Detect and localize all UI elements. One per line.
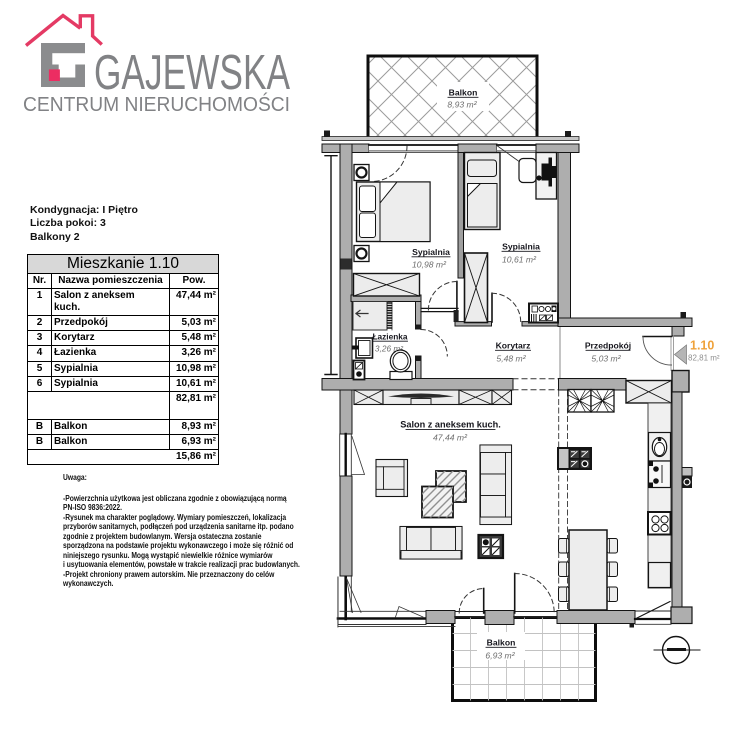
svg-text:5,48 m²: 5,48 m²	[496, 354, 526, 364]
svg-text:10,98 m²: 10,98 m²	[412, 260, 447, 270]
svg-text:Balkon: Balkon	[449, 88, 478, 98]
svg-text:Korytarz: Korytarz	[496, 341, 531, 351]
svg-text:8,93 m²: 8,93 m²	[447, 100, 477, 110]
svg-text:3,26 m²: 3,26 m²	[375, 344, 403, 354]
svg-text:10,61 m²: 10,61 m²	[502, 255, 537, 265]
svg-text:Balkon: Balkon	[487, 638, 516, 648]
svg-text:6,93 m²: 6,93 m²	[485, 651, 515, 661]
svg-text:Salon z aneksem kuch.: Salon z aneksem kuch.	[400, 420, 501, 430]
svg-text:5,03 m²: 5,03 m²	[591, 354, 621, 364]
svg-text:Sypialnia: Sypialnia	[412, 247, 450, 257]
svg-text:1.10: 1.10	[690, 339, 714, 353]
svg-text:Łazienka: Łazienka	[372, 332, 407, 342]
svg-text:47,44 m²: 47,44 m²	[433, 433, 468, 443]
svg-text:82,81 m²: 82,81 m²	[688, 354, 720, 363]
svg-text:Przedpokój: Przedpokój	[585, 341, 631, 351]
svg-text:Sypialnia: Sypialnia	[502, 242, 540, 252]
